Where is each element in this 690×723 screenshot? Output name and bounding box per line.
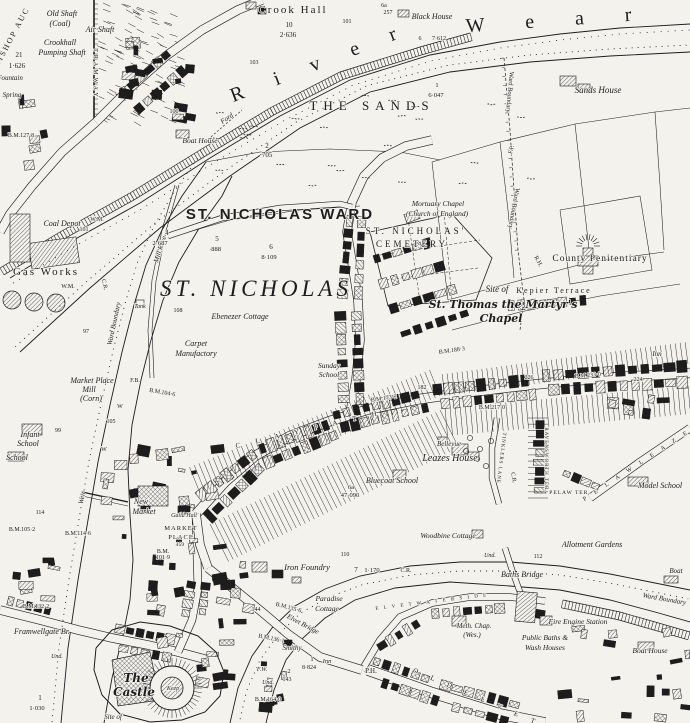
map-label: 224 [634, 377, 643, 383]
map-label: 6 [269, 243, 273, 251]
map-label: Gas Works [13, 266, 79, 278]
map-label: 1 [38, 694, 42, 702]
map-label: Framwellgate Br. [13, 627, 70, 636]
map-label: Carpet [185, 339, 208, 348]
map-label: Castle [113, 685, 155, 699]
map-label: 226 [525, 375, 534, 381]
map-label: F.W. [256, 667, 267, 673]
map-label: Bluecoat School [366, 476, 419, 485]
map-label: B.M.114·6 [65, 531, 91, 537]
map-label: 7·612 [432, 36, 446, 42]
map-label: Model School [637, 481, 683, 490]
os-town-plan-map: BISHOP AUCOld Shaft(Coal)Air ShaftCrookh… [0, 0, 690, 723]
map-label: Site of [486, 284, 510, 294]
map-label: Boat House [632, 646, 668, 655]
map-label: 4 [165, 229, 169, 237]
map-label: 1 [435, 82, 438, 89]
map-label: Und. [484, 553, 496, 559]
map-label: Ebenezer Cottage [210, 312, 269, 321]
map-label: ·705 [260, 151, 273, 159]
map-label: 100 [170, 109, 179, 115]
map-label: 7 [354, 566, 358, 574]
map-label: 8·824 [302, 665, 316, 671]
map-label: W [101, 447, 107, 453]
map-label: 144 [252, 607, 261, 613]
map-label: Kepier Terrace [516, 286, 591, 295]
map-label: Public Baths & [521, 633, 568, 642]
map-label: Site of [104, 713, 123, 721]
map-label: Pumping Shaft [37, 48, 86, 57]
map-label: TRAMWAY [92, 48, 98, 99]
map-label: 143 [283, 677, 292, 683]
map-label: 1·030 [29, 705, 44, 712]
map-label: 99 [55, 428, 61, 434]
map-label: Cottage [315, 604, 339, 613]
map-label: Keep [166, 686, 179, 692]
map-label: 6 [419, 36, 422, 42]
map-label: THE SANDS [309, 98, 434, 113]
map-label: 159 [176, 542, 185, 548]
map-label: Black House [412, 12, 453, 21]
map-label: (Corn) [80, 394, 102, 403]
map-label: B.M.105·2 [9, 527, 35, 533]
map-label: Baths Bridge [501, 570, 543, 579]
map-label: MARKET [164, 525, 197, 532]
map-label: 10 [286, 21, 294, 29]
map-label: 6a [348, 484, 354, 491]
map-label: School [17, 439, 40, 448]
map-label: PLACE [168, 534, 194, 541]
map-label: (Church of England) [406, 209, 469, 218]
map-label: 257 [384, 10, 393, 16]
map-label: Mortuary Chapel [411, 199, 464, 208]
map-label: 6a [381, 3, 387, 9]
map-label: Crookhall [44, 38, 77, 47]
map-label: B.M.132·2 [23, 604, 49, 610]
map-label: Market [131, 507, 156, 516]
map-label: W.M. [61, 284, 75, 290]
map-label: 182 [418, 385, 427, 391]
map-label: 101 [343, 19, 352, 25]
map-label: 1·170 [364, 567, 379, 574]
map-label: County Penitentiary [552, 254, 647, 264]
map-label: W.M. [90, 217, 104, 223]
map-label: 1·626 [9, 62, 26, 70]
map-label: Paradise [314, 594, 343, 603]
map-label: ST. NICHOLAS [160, 276, 352, 301]
map-label: Sands House [575, 85, 622, 95]
map-viewport: BISHOP AUCOld Shaft(Coal)Air ShaftCrookh… [0, 0, 690, 723]
map-label: Fountain [0, 74, 23, 82]
map-label: 2·687 [152, 240, 168, 247]
map-label: ·888 [209, 246, 221, 253]
map-label: School [319, 370, 339, 379]
map-label: B.M.164·0 [255, 697, 281, 703]
map-label: Coal Depot [43, 219, 81, 228]
map-label: CEMETERY [376, 239, 448, 249]
map-label: Und. [262, 680, 274, 686]
map-label: New [133, 497, 149, 506]
map-label: W [117, 404, 123, 410]
map-label: Leazes House [421, 453, 478, 464]
map-label: C.R. [400, 568, 412, 574]
map-label: Spring [3, 91, 22, 99]
map-label: 110 [341, 552, 350, 558]
map-label: Iron Foundry [283, 562, 330, 572]
map-label: (Coal) [50, 19, 71, 28]
map-label: Meth. Chap. [456, 622, 492, 630]
map-label: 108 [174, 308, 183, 314]
map-label: Woodbine Cottage [420, 531, 476, 540]
map-label: ST. NICHOLAS WARD [186, 206, 374, 223]
map-label: Boat [669, 567, 683, 575]
map-label: (Wes.) [463, 631, 481, 639]
map-label: Smithy [282, 644, 302, 652]
map-label: Wash Houses [525, 643, 565, 652]
map-label: Sunday [318, 361, 341, 370]
map-label: B.M.127·8 [8, 133, 34, 139]
map-label: Air Shaft [85, 25, 115, 34]
map-label: 2 [265, 142, 269, 150]
map-label: Manufactory [174, 349, 217, 358]
map-label: Und. [51, 654, 63, 660]
map-label: School [6, 453, 29, 462]
map-label: 8·109 [261, 254, 276, 261]
map-label: 1 [310, 656, 313, 663]
map-label: Bellevue [437, 440, 461, 448]
map-label: 105 [107, 419, 116, 425]
map-label: Crook Hall [258, 4, 327, 16]
map-label: Tank [134, 304, 146, 310]
map-label: 112 [534, 554, 543, 560]
map-label: Mill [81, 385, 96, 394]
map-label: Allotment Gardens [561, 540, 622, 549]
map-label: 5 [215, 235, 219, 243]
map-label: Infant [19, 430, 40, 439]
map-label: P.H. [365, 667, 377, 675]
map-label: ST. NICHOLAS' [366, 226, 466, 236]
map-label: F.B. [130, 378, 140, 384]
map-label: 2 [287, 668, 290, 675]
map-label: Chapel [480, 312, 523, 325]
map-label: 114 [36, 510, 45, 516]
map-label: 103 [250, 60, 259, 66]
map-label: St. Thomas the Martyr's [429, 298, 578, 311]
map-label: 101 [80, 227, 89, 233]
map-label: The [123, 671, 149, 685]
map-label: 101·9 [156, 555, 170, 561]
map-label: Inn [651, 350, 662, 358]
map-label: RAVENSWORTH TER. [543, 427, 548, 492]
map-label: B.M.217·0 [479, 405, 505, 411]
map-label: Guild Hall [171, 513, 197, 519]
map-label: Market Place [69, 376, 114, 385]
map-label: 47·090 [341, 492, 359, 499]
map-label: Old Shaft [47, 9, 78, 18]
map-label: Boat House [182, 136, 218, 145]
map-label: 2·636 [280, 31, 297, 39]
map-label: 21 [16, 51, 24, 59]
map-label: Inn [322, 658, 332, 665]
map-label: Fire Engine Station [548, 617, 608, 626]
map-label: 97 [83, 329, 89, 335]
